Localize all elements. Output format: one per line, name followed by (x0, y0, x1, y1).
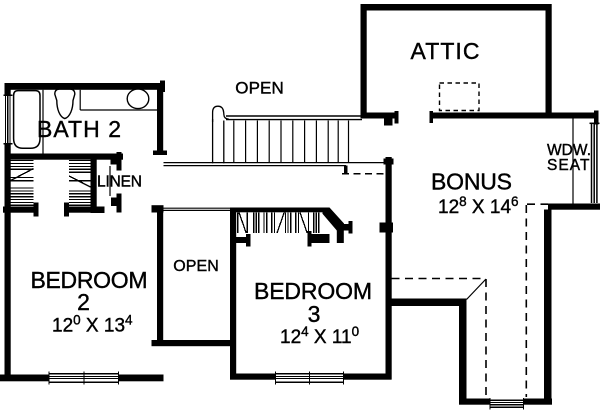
svg-text:OPEN: OPEN (235, 79, 284, 98)
svg-text:ATTIC: ATTIC (411, 38, 480, 64)
svg-text:124 X 110: 124 X 110 (280, 324, 359, 348)
svg-text:SEAT: SEAT (547, 157, 590, 174)
svg-text:BATH 2: BATH 2 (37, 116, 121, 142)
svg-text:2: 2 (77, 289, 90, 315)
svg-text:128 X 146: 128 X 146 (438, 194, 519, 218)
svg-text:LINEN: LINEN (97, 174, 142, 191)
svg-text:120 X 134: 120 X 134 (52, 312, 133, 336)
svg-text:OPEN: OPEN (173, 258, 219, 275)
svg-text:3: 3 (308, 301, 321, 327)
svg-text:BONUS: BONUS (431, 169, 512, 195)
